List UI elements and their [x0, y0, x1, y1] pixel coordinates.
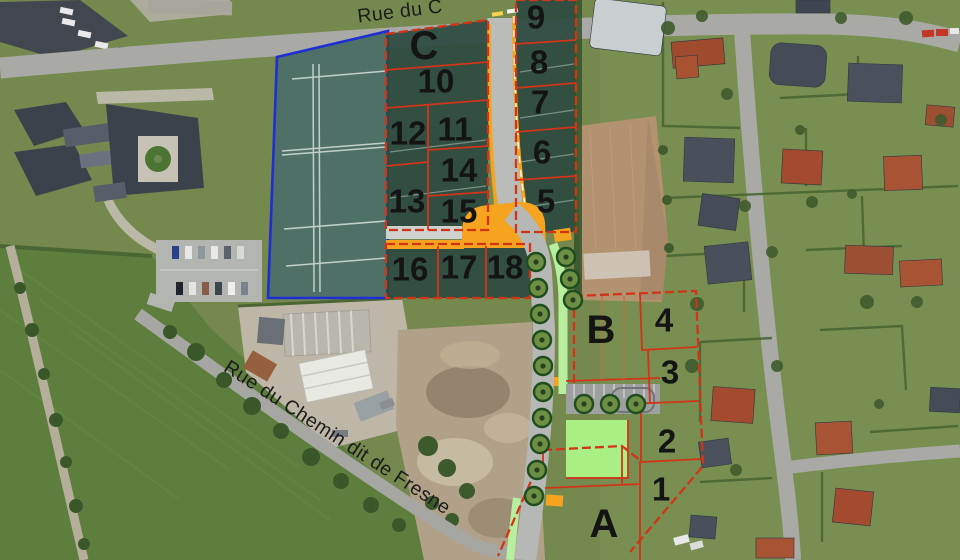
tree-icon	[601, 395, 619, 413]
plot-label-15: 15	[441, 195, 478, 228]
plot-label-3: 3	[661, 356, 679, 389]
plot-label-16: 16	[392, 253, 429, 286]
zone-label-a: A	[590, 504, 619, 544]
tree-icon	[531, 435, 549, 453]
tree-icon	[534, 383, 552, 401]
school-parking	[147, 240, 262, 312]
plot-label-18: 18	[487, 251, 524, 284]
plot-label-13: 13	[389, 185, 426, 218]
aerial-site-plan: Rue du C Rue du Chemin dit de Fresne A B…	[0, 0, 960, 560]
plot-label-8: 8	[530, 46, 548, 79]
plot-label-11: 11	[438, 113, 473, 146]
tree-icon	[564, 291, 582, 309]
plot-label-14: 14	[441, 154, 478, 187]
project-perimeter	[268, 31, 388, 298]
plot-label-2: 2	[658, 425, 676, 458]
tree-icon	[557, 248, 575, 266]
aerial-map-graphics	[0, 0, 960, 560]
tree-icon	[534, 357, 552, 375]
plot-label-10: 10	[418, 65, 455, 98]
plot-label-12: 12	[390, 117, 427, 150]
plot-label-7: 7	[531, 86, 549, 119]
plot-label-4: 4	[655, 304, 673, 337]
tree-icon	[531, 305, 549, 323]
plot-label-6: 6	[533, 136, 551, 169]
tree-icon	[528, 461, 546, 479]
tree-icon	[525, 487, 543, 505]
tree-icon	[529, 279, 547, 297]
zone-label-c: C	[410, 26, 439, 66]
tree-icon	[533, 331, 551, 349]
tree-icon	[575, 395, 593, 413]
plot-label-9: 9	[527, 1, 545, 34]
tree-icon	[533, 409, 551, 427]
plot-label-5: 5	[537, 185, 555, 218]
tree-icon	[561, 270, 579, 288]
plot-label-17: 17	[441, 251, 478, 284]
tree-icon	[627, 395, 645, 413]
zone-label-b: B	[587, 310, 616, 350]
plot-label-1: 1	[652, 473, 670, 506]
tree-icon	[527, 253, 545, 271]
